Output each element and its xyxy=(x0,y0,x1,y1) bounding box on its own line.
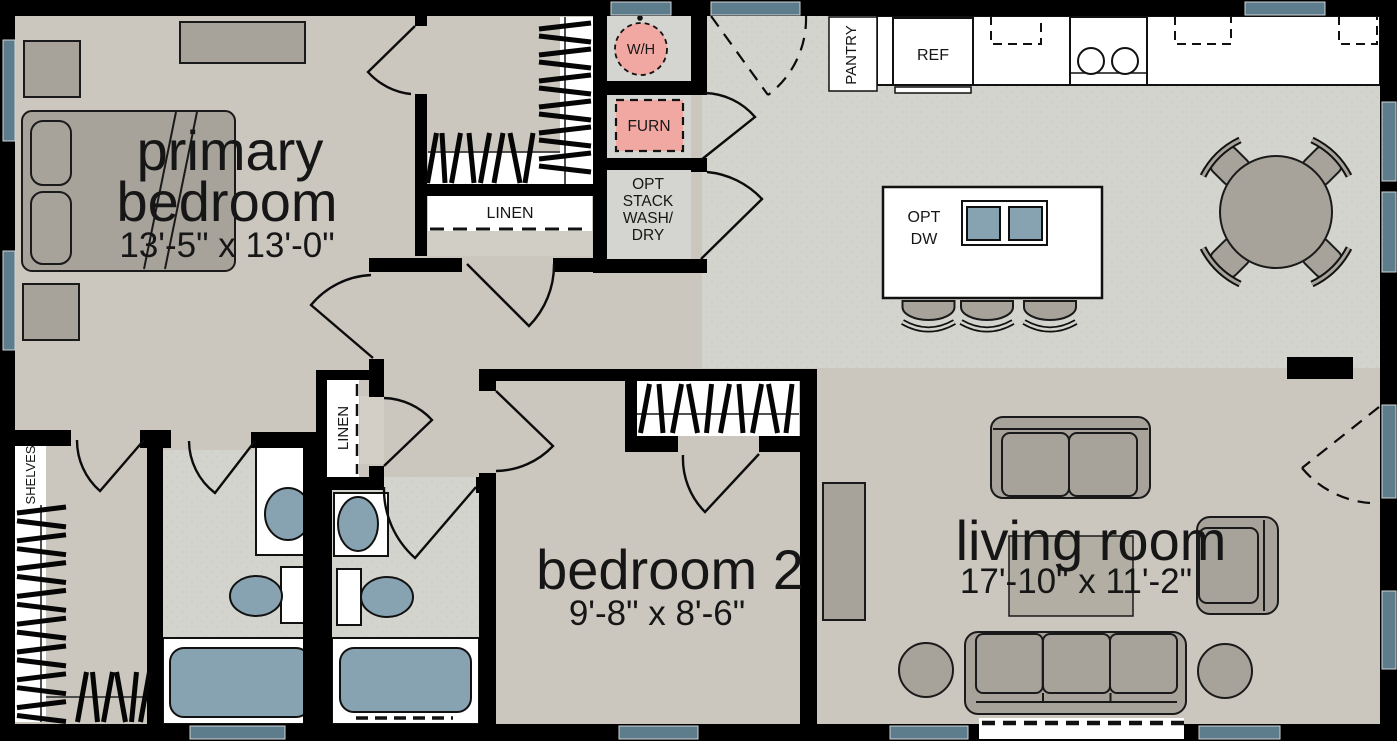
svg-text:bedroom 2: bedroom 2 xyxy=(536,538,804,601)
svg-text:PANTRY: PANTRY xyxy=(843,25,860,84)
svg-text:W/H: W/H xyxy=(627,42,655,58)
svg-text:9'-8" x 8'-6": 9'-8" x 8'-6" xyxy=(569,594,745,633)
svg-text:LINEN: LINEN xyxy=(335,406,352,450)
svg-text:LINEN: LINEN xyxy=(486,205,533,222)
svg-text:WASH/: WASH/ xyxy=(623,210,674,227)
svg-text:OPT: OPT xyxy=(632,176,664,193)
svg-text:SHELVES: SHELVES xyxy=(23,445,38,504)
svg-text:DW: DW xyxy=(911,231,939,248)
svg-text:FURN: FURN xyxy=(627,118,670,135)
svg-text:13'-5" x 13'-0": 13'-5" x 13'-0" xyxy=(119,226,334,265)
svg-text:bedroom: bedroom xyxy=(116,170,337,233)
svg-text:DRY: DRY xyxy=(632,227,664,244)
svg-text:STACK: STACK xyxy=(623,193,674,210)
svg-text:OPT: OPT xyxy=(908,209,941,226)
svg-text:17'-10" x 11'-2": 17'-10" x 11'-2" xyxy=(960,562,1192,601)
svg-text:REF: REF xyxy=(917,47,949,64)
